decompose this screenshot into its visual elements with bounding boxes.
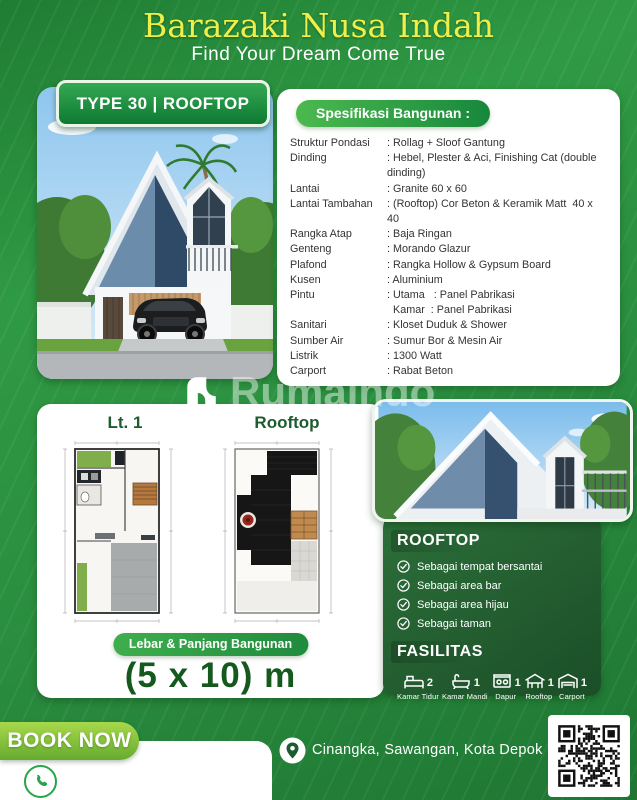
type-badge: TYPE 30 | ROOFTOP — [56, 80, 270, 127]
spec-row: Sanitari: Kloset Duduk & Shower — [290, 318, 607, 333]
rooftop-panel: ROOFTOP Sebagai tempat bersantai Sebagai… — [383, 516, 601, 696]
book-now-button[interactable]: BOOK NOW — [0, 722, 139, 760]
kitchen-icon — [491, 672, 513, 689]
rooftop-illustration — [375, 402, 630, 519]
spec-row: Listrik: 1300 Watt — [290, 349, 607, 364]
spec-card: Spesifikasi Bangunan : Struktur Pondasi:… — [277, 89, 620, 386]
facility-label: Carport — [559, 692, 585, 701]
bath-icon — [450, 672, 472, 689]
bed-icon — [403, 672, 425, 689]
spec-row: Rangka Atap: Baja Ringan — [290, 227, 607, 242]
facility-item: 1 Carport — [557, 672, 587, 701]
check-circle-icon — [397, 617, 410, 630]
facility-count: 1 — [581, 677, 587, 689]
location-pin-icon — [279, 737, 306, 764]
spec-row: Lantai: Granite 60 x 60 — [290, 182, 607, 197]
facility-item: 1 Rooftop — [524, 672, 554, 701]
rooftop-icon — [524, 672, 546, 689]
facility-label: Kamar Tidur — [397, 692, 439, 701]
fasilitas-row: 2 Kamar Tidur 1 Kamar Mandi 1 Dapur — [397, 672, 587, 701]
rooftop-plan-label: Rooftop — [222, 413, 352, 433]
fasilitas-heading: FASILITAS — [391, 641, 489, 663]
facility-label: Dapur — [495, 692, 516, 701]
flyer-page: Barazaki Nusa Indah Find Your Dream Come… — [0, 0, 637, 800]
facility-count: 1 — [548, 677, 554, 689]
carport-icon — [557, 672, 579, 689]
spec-row: Carport: Rabat Beton — [290, 364, 607, 379]
checklist-item: Sebagai area bar — [397, 579, 587, 592]
spec-row: Lantai Tambahan: (Rooftop) Cor Beton & K… — [290, 197, 607, 227]
check-circle-icon — [397, 560, 410, 573]
size-pill: Lebar & Panjang Bangunan — [113, 633, 308, 656]
qr-code[interactable] — [548, 715, 630, 797]
floor1-plan — [55, 435, 180, 627]
checklist-item: Sebagai taman — [397, 617, 587, 630]
spec-row: Pintu: Utama : Panel Pabrikasi — [290, 288, 607, 303]
facility-count: 1 — [515, 677, 521, 689]
facility-label: Rooftop — [525, 692, 552, 701]
whatsapp-button[interactable] — [24, 765, 57, 798]
rooftop-checklist: Sebagai tempat bersantai Sebagai area ba… — [397, 560, 587, 630]
size-value: (5 x 10) m — [37, 656, 384, 696]
facility-item: 1 Dapur — [491, 672, 521, 701]
whatsapp-phone-icon — [32, 773, 49, 790]
house-illustration — [37, 87, 273, 379]
floor1-plan-label: Lt. 1 — [60, 413, 190, 433]
check-circle-icon — [397, 579, 410, 592]
rooftop-heading: ROOFTOP — [391, 530, 486, 552]
facility-item: 1 Kamar Mandi — [442, 672, 488, 701]
spec-row: Plafond: Rangka Hollow & Gypsum Board — [290, 258, 607, 273]
spec-heading-pill: Spesifikasi Bangunan : — [296, 100, 490, 127]
facility-label: Kamar Mandi — [442, 692, 488, 701]
facility-count: 1 — [474, 677, 480, 689]
location-text: Cinangka, Sawangan, Kota Depok — [312, 742, 543, 758]
check-circle-icon — [397, 598, 410, 611]
page-subtitle: Find Your Dream Come True — [0, 44, 637, 66]
checklist-item: Sebagai tempat bersantai — [397, 560, 587, 573]
facility-item: 2 Kamar Tidur — [397, 672, 439, 701]
rooftop-photo — [372, 399, 633, 522]
spec-rows: Struktur Pondasi: Rollag + Sloof Gantung… — [290, 136, 607, 379]
spec-row: Struktur Pondasi: Rollag + Sloof Gantung — [290, 136, 607, 151]
house-photo — [37, 87, 273, 379]
facility-count: 2 — [427, 677, 433, 689]
plans-card: Lt. 1 Rooftop — [37, 404, 384, 698]
spec-row: Dinding: Hebel, Plester & Aci, Finishing… — [290, 151, 607, 181]
spec-row: Kamar : Panel Pabrikasi — [290, 303, 607, 318]
rooftop-plan — [215, 435, 340, 627]
page-title: Barazaki Nusa Indah — [0, 6, 637, 45]
checklist-item: Sebagai area hijau — [397, 598, 587, 611]
spec-row: Sumber Air: Sumur Bor & Mesin Air — [290, 334, 607, 349]
spec-row: Kusen: Aluminium — [290, 273, 607, 288]
spec-row: Genteng: Morando Glazur — [290, 242, 607, 257]
qr-svg — [552, 719, 626, 793]
